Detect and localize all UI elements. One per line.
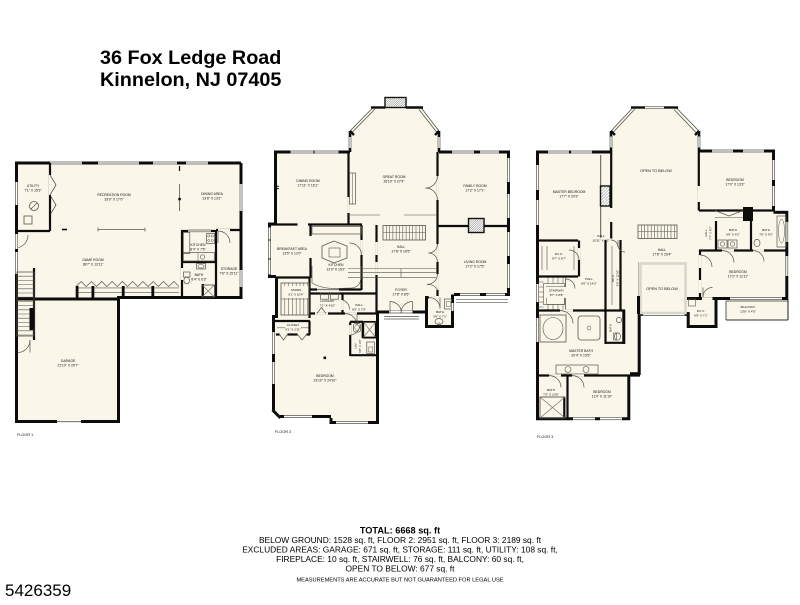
svg-text:GARAGE: GARAGE xyxy=(61,359,76,363)
svg-text:6'9" X 7'1": 6'9" X 7'1" xyxy=(433,315,447,319)
svg-text:LAUNDRY: LAUNDRY xyxy=(320,299,335,303)
svg-text:OPEN TO BELOW: OPEN TO BELOW xyxy=(646,287,678,291)
svg-text:MASTER BEDROOM: MASTER BEDROOM xyxy=(553,190,586,194)
svg-text:6'5" X 7'1": 6'5" X 7'1" xyxy=(694,314,708,318)
svg-text:13'6" X 4'5": 13'6" X 4'5" xyxy=(740,310,756,314)
svg-text:KITCHEN: KITCHEN xyxy=(191,243,206,247)
svg-text:BELOW GROUND: 1528 sq. ft, FLO: BELOW GROUND: 1528 sq. ft, FLOOR 2: 2951… xyxy=(259,535,542,545)
svg-text:TOTAL: 6668 sq. ft: TOTAL: 6668 sq. ft xyxy=(360,526,440,536)
svg-text:13'5" X 12'0": 13'5" X 12'0" xyxy=(282,252,302,256)
svg-text:11'4" X 11'10": 11'4" X 11'10" xyxy=(592,395,613,399)
svg-text:5426359: 5426359 xyxy=(5,581,71,600)
svg-text:17'7" X 20'3": 17'7" X 20'3" xyxy=(559,195,579,199)
svg-text:20'4" X 15'5": 20'4" X 15'5" xyxy=(571,354,591,358)
svg-text:CLOSET: CLOSET xyxy=(287,323,299,327)
svg-text:36 Fox Ledge Road: 36 Fox Ledge Road xyxy=(100,47,281,69)
svg-text:7'1" X 15'3": 7'1" X 15'3" xyxy=(24,189,42,193)
svg-text:21'10" X 29'7": 21'10" X 29'7" xyxy=(57,364,79,368)
svg-text:17'8" X 8'5": 17'8" X 8'5" xyxy=(392,293,410,297)
svg-text:HALL: HALL xyxy=(658,248,667,252)
svg-text:MASTER BATH: MASTER BATH xyxy=(569,349,593,353)
svg-text:LIVING ROOM: LIVING ROOM xyxy=(464,260,487,264)
svg-text:BREAKFAST AREA: BREAKFAST AREA xyxy=(277,247,308,251)
svg-text:9'7" X 8'8": 9'7" X 8'8" xyxy=(550,293,564,297)
svg-text:17'11" X 16'1": 17'11" X 16'1" xyxy=(298,184,320,188)
svg-text:7'0" X 9'3": 7'0" X 9'3" xyxy=(759,233,773,237)
svg-text:7'7" X 9'7": 7'7" X 9'7" xyxy=(709,226,713,240)
svg-text:BEDROOM: BEDROOM xyxy=(316,374,334,378)
svg-text:Kinnelon, NJ 07405: Kinnelon, NJ 07405 xyxy=(100,69,281,91)
svg-text:17'2" X 11'11": 17'2" X 11'11" xyxy=(728,275,749,279)
svg-text:FOYER: FOYER xyxy=(395,288,407,292)
svg-text:7'1" X 4'10": 7'1" X 4'10" xyxy=(320,304,336,308)
svg-text:9'7" X 6'7": 9'7" X 6'7" xyxy=(552,257,566,261)
svg-text:17'2" X 17'5": 17'2" X 17'5" xyxy=(465,265,485,269)
svg-text:FAMILY ROOM: FAMILY ROOM xyxy=(463,184,486,188)
svg-text:6'8" X 3'6": 6'8" X 3'6" xyxy=(358,339,362,353)
svg-text:BATH: BATH xyxy=(547,388,555,392)
svg-text:33'0" X 17'0": 33'0" X 17'0" xyxy=(104,198,124,202)
svg-text:FLOOR 2: FLOOR 2 xyxy=(275,430,291,434)
svg-text:FLOOR 3: FLOOR 3 xyxy=(537,435,553,439)
svg-text:12'0" X 15'2": 12'0" X 15'2" xyxy=(326,268,346,272)
svg-text:STAIRS: STAIRS xyxy=(291,288,302,292)
svg-text:HALL: HALL xyxy=(397,245,406,249)
svg-text:BATH: BATH xyxy=(762,228,770,232)
svg-text:BATH: BATH xyxy=(436,310,444,314)
svg-text:6'0" X 7'5": 6'0" X 7'5" xyxy=(352,308,366,312)
svg-text:DINING AREA: DINING AREA xyxy=(201,192,224,196)
svg-text:W.I.C.: W.I.C. xyxy=(611,274,615,282)
svg-text:HALL: HALL xyxy=(585,277,593,281)
svg-text:38'7" X 13'11": 38'7" X 13'11" xyxy=(83,263,105,267)
svg-text:6'6" X 6'2": 6'6" X 6'2" xyxy=(726,233,740,237)
svg-text:17'8" X 16'5": 17'8" X 16'5" xyxy=(391,250,411,254)
svg-text:W.I.C.: W.I.C. xyxy=(555,252,564,256)
svg-text:7'2" X 10'6": 7'2" X 10'6" xyxy=(543,393,559,397)
svg-text:HALL: HALL xyxy=(597,234,605,238)
svg-text:BATH: BATH xyxy=(195,273,204,277)
svg-text:RECREATION ROOM: RECREATION ROOM xyxy=(97,193,131,197)
svg-text:W.I.C.: W.I.C. xyxy=(697,309,705,313)
svg-text:GAME ROOM: GAME ROOM xyxy=(82,258,104,262)
svg-text:LAV: LAV xyxy=(354,343,358,348)
svg-text:7'6" X 15'11": 7'6" X 15'11" xyxy=(220,272,240,276)
svg-text:6'0" X 14'2": 6'0" X 14'2" xyxy=(581,282,597,286)
svg-text:17'8" X 26'4": 17'8" X 26'4" xyxy=(652,253,672,257)
svg-text:9'1" X 10'4": 9'1" X 10'4" xyxy=(288,293,303,297)
svg-text:BATH: BATH xyxy=(729,228,737,232)
svg-text:UTILITY: UTILITY xyxy=(27,184,40,188)
svg-text:FLOOR 1: FLOOR 1 xyxy=(17,433,33,437)
svg-text:OPEN TO BELOW: 677 sq. ft: OPEN TO BELOW: 677 sq. ft xyxy=(346,564,456,574)
svg-text:BEDROOM: BEDROOM xyxy=(726,178,744,182)
svg-text:FIREPLACE: 10 sq. ft, STAIRWEL: FIREPLACE: 10 sq. ft, STAIRWELL: 76 sq. … xyxy=(276,554,524,564)
svg-text:GREAT ROOM: GREAT ROOM xyxy=(383,175,406,179)
svg-text:EXCLUDED AREAS: GARAGE: 671 sq: EXCLUDED AREAS: GARAGE: 671 sq. ft, STOR… xyxy=(242,545,558,555)
svg-text:DINING ROOM: DINING ROOM xyxy=(296,179,320,183)
svg-text:8'4" X 7'5": 8'4" X 7'5" xyxy=(190,248,206,252)
svg-text:BEDROOM: BEDROOM xyxy=(729,270,747,274)
svg-text:OPEN TO BELOW: OPEN TO BELOW xyxy=(640,169,672,173)
svg-text:BATH: BATH xyxy=(609,324,613,332)
svg-text:HALL: HALL xyxy=(704,229,708,237)
svg-text:BEDROOM: BEDROOM xyxy=(593,390,611,394)
svg-text:STAIRWAY: STAIRWAY xyxy=(549,289,564,293)
svg-text:10'11" X 6'2": 10'11" X 6'2" xyxy=(592,239,609,243)
svg-text:4'0" X 11'10": 4'0" X 11'10" xyxy=(616,270,620,287)
svg-text:HALL: HALL xyxy=(355,303,363,307)
svg-text:17'0" X 13'3": 17'0" X 13'3" xyxy=(725,183,745,187)
svg-text:KITCHEN: KITCHEN xyxy=(329,263,344,267)
svg-text:BALCONY: BALCONY xyxy=(741,305,756,309)
svg-text:9'1" X 2'11": 9'1" X 2'11" xyxy=(285,328,301,332)
svg-text:MEASUREMENTS ARE ACCURATE BUT: MEASUREMENTS ARE ACCURATE BUT NOT GUARAN… xyxy=(296,578,503,584)
svg-text:STORAGE: STORAGE xyxy=(221,267,238,271)
svg-text:8'4" X 6'3": 8'4" X 6'3" xyxy=(191,278,207,282)
svg-text:17'2" X 17'1": 17'2" X 17'1" xyxy=(465,189,485,193)
svg-text:26'10" X 27'9": 26'10" X 27'9" xyxy=(383,180,405,184)
svg-text:13'8" X 13'2": 13'8" X 13'2" xyxy=(202,197,222,201)
svg-text:23'10" X 24'10": 23'10" X 24'10" xyxy=(314,379,338,383)
